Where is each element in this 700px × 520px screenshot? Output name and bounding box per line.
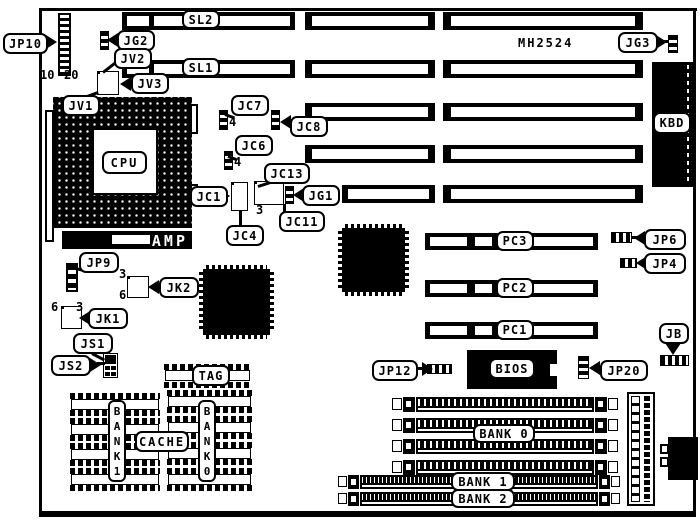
jg3-text: JG3 [626, 37, 651, 49]
jv2-text: JV2 [121, 53, 146, 65]
callout-jb: JB [659, 323, 689, 344]
pc2-label: PC2 [496, 278, 534, 298]
cpu-socket-tab-upper [190, 104, 198, 134]
jp10-header [58, 13, 71, 76]
callout-jc6: JC6 [235, 135, 273, 156]
callout-jg1: JG1 [302, 185, 340, 206]
board-border-bottom [39, 511, 696, 517]
isa-slot-row1-right [443, 12, 643, 30]
jp12-pointer [422, 362, 433, 376]
jp10-text: JP10 [9, 38, 42, 50]
callout-jc13: JC13 [264, 163, 310, 184]
jv1-text: JV1 [69, 100, 94, 112]
callout-jp20: JP20 [600, 360, 648, 381]
jv3-pointer [120, 77, 131, 91]
jp6-text: JP6 [653, 234, 678, 246]
callout-jv3: JV3 [131, 73, 169, 94]
board-border-left [39, 8, 42, 514]
pc3-label: PC3 [496, 231, 534, 251]
jk2-header [127, 276, 149, 298]
bank2-text: BANK 2 [458, 493, 507, 505]
callout-jp9: JP9 [79, 252, 119, 273]
sl1-text: SL1 [189, 62, 214, 74]
js2-pointer [90, 358, 101, 372]
kbd-text: KBD [660, 117, 685, 129]
bank0-label: BANK 0 [473, 424, 535, 443]
jp6-connector [611, 232, 632, 243]
js2-text: JS2 [59, 360, 84, 372]
jc1-text: JC1 [197, 191, 222, 203]
callout-jc8: JC8 [290, 116, 328, 137]
slot-label-sl2: SL2 [182, 10, 220, 29]
jc4-text: JC4 [233, 230, 258, 242]
jg2-text: JG2 [124, 35, 149, 47]
callout-jc7: JC7 [231, 95, 269, 116]
jp10-pin20: 20 [64, 69, 78, 81]
amp-text: AMP [152, 232, 188, 250]
isa-slot-row3-right [443, 103, 643, 121]
jg3-connector [668, 35, 678, 53]
bank1-text: BANK 1 [458, 476, 507, 488]
jk1-pin3: 3 [76, 301, 83, 313]
isa-slot-row4-mid [305, 145, 435, 163]
jp20-text: JP20 [608, 365, 641, 377]
jk1-pin6: 6 [51, 301, 58, 313]
callout-jc11: JC11 [279, 211, 325, 232]
jp4-text: JP4 [653, 258, 678, 270]
tag-label: TAG [192, 365, 230, 386]
jc8-connector [271, 110, 280, 130]
jk2-pin3: 3 [119, 268, 126, 280]
isa-slot-row5-mid [342, 185, 435, 203]
jp10-pin10: 10 [40, 69, 54, 81]
power-connector [627, 392, 655, 506]
jc1-header [231, 182, 248, 211]
js-header [103, 353, 118, 378]
cache-bank1-label: BANK1 [108, 400, 126, 482]
callout-jp6: JP6 [644, 229, 686, 250]
jc6-pin4: 4 [234, 156, 241, 168]
cache-label: CACHE [135, 431, 189, 452]
callout-jg3: JG3 [618, 32, 658, 53]
jb-pointer [665, 343, 681, 355]
callout-jp4: JP4 [644, 253, 686, 274]
callout-jp10: JP10 [3, 33, 48, 54]
isa-slot-row1-mid [305, 12, 435, 30]
callout-jv1: JV1 [62, 95, 100, 116]
jp20-connector [578, 356, 589, 379]
pc1-label: PC1 [496, 320, 534, 340]
jb-text: JB [666, 328, 682, 340]
jp12-text: JP12 [379, 365, 412, 377]
pc1-text: PC1 [503, 324, 528, 336]
isa-slot-row2-right [443, 60, 643, 78]
callout-jv2: JV2 [114, 48, 152, 69]
isa-slot-row5-right [443, 185, 643, 203]
callout-jp12: JP12 [372, 360, 418, 381]
isa-slot-row2-mid [305, 60, 435, 78]
cache-text: CACHE [139, 436, 185, 448]
cpu-socket-left-bracket [45, 110, 54, 242]
bank2-label: BANK 2 [451, 489, 515, 508]
jk2-pin6: 6 [119, 289, 126, 301]
jk1-text: JK1 [96, 313, 121, 325]
cache-bank0-label: BANK0 [198, 400, 216, 482]
bank0-simm-slot [392, 397, 618, 412]
pc3-text: PC3 [503, 235, 528, 247]
bios-text: BIOS [496, 363, 529, 375]
amp-socket-bar: AMP [62, 231, 192, 249]
jc8-text: JC8 [297, 121, 322, 133]
jc11-text: JC11 [286, 216, 319, 228]
jv-header [97, 71, 119, 95]
jg3-leader [659, 40, 669, 43]
sl2-text: SL2 [189, 14, 214, 26]
cpu-label: CPU [102, 151, 147, 174]
jc7-pin4: 4 [229, 116, 236, 128]
motherboard-diagram: SL2 SL1 MH2524 JP10 10 20 JG2 JG3 JV2 JV… [0, 0, 700, 520]
external-power-socket [668, 437, 698, 480]
jc6-connector [224, 151, 233, 170]
callout-js2: JS2 [51, 355, 91, 376]
power-socket-tab [660, 457, 669, 467]
jc13-pin3: 3 [256, 204, 263, 216]
js2-leader [97, 362, 105, 365]
jg1-text: JG1 [309, 190, 334, 202]
jc13-text: JC13 [271, 168, 304, 180]
callout-jk1: JK1 [88, 308, 128, 329]
board-model: MH2524 [518, 37, 573, 49]
jc7-text: JC7 [238, 100, 263, 112]
kbd-label: KBD [653, 112, 691, 134]
js1-text: JS1 [81, 338, 106, 350]
tag-text: TAG [199, 370, 224, 382]
callout-jc4: JC4 [226, 225, 264, 246]
callout-jk2: JK2 [159, 277, 199, 298]
chipset-qfp-left [203, 269, 270, 335]
power-socket-tab [660, 444, 669, 454]
jk2-pointer [148, 280, 159, 294]
jb-connector [660, 355, 689, 366]
jp9-text: JP9 [87, 257, 112, 269]
board-border-top [39, 8, 697, 11]
jc4-leader [239, 211, 242, 225]
jv3-text: JV3 [138, 78, 163, 90]
jc6-text: JC6 [242, 140, 267, 152]
jk2-text: JK2 [167, 282, 192, 294]
callout-js1: JS1 [73, 333, 113, 354]
callout-jc1: JC1 [190, 186, 228, 207]
cpu-text: CPU [111, 157, 139, 169]
chipset-qfp-right [342, 228, 405, 292]
jp4-connector [620, 258, 637, 268]
bank0-text: BANK 0 [479, 428, 528, 440]
slot-label-sl1: SL1 [182, 58, 220, 77]
pc2-text: PC2 [503, 282, 528, 294]
bios-label: BIOS [489, 358, 535, 379]
isa-slot-row4-right [443, 145, 643, 163]
